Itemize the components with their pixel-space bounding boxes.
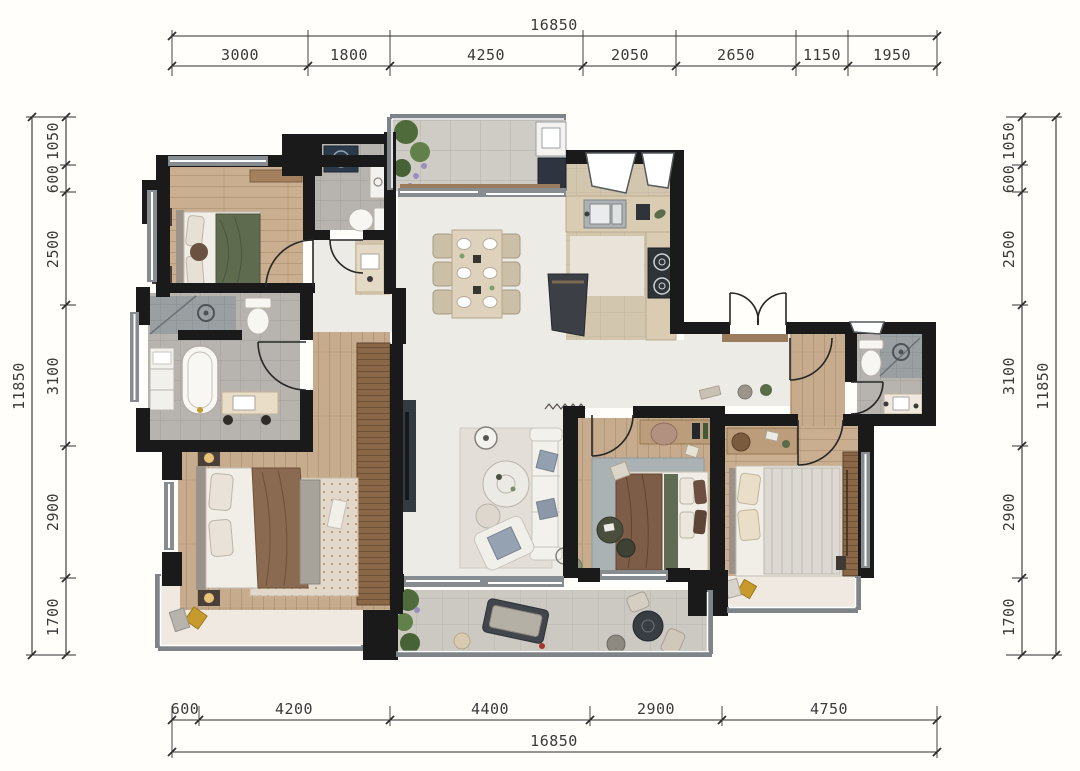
wall-bedroom1-bottom xyxy=(168,283,315,293)
dim-bottom-seg-0: 600 xyxy=(171,700,200,718)
wall-bath2-right-a xyxy=(300,293,313,340)
dim-left-seg-2: 2500 xyxy=(44,230,62,268)
wall-dining-corridor xyxy=(392,288,406,344)
sofa-pillow-1 xyxy=(536,450,558,472)
bath1-toilet-bowl xyxy=(349,209,373,231)
floor-plan-svg: 16850 3000 1800 4250 2050 2650 1150 1950… xyxy=(0,0,1080,771)
kitchen-sink-basin xyxy=(590,204,610,224)
dim-left-seg-5: 1700 xyxy=(44,598,62,636)
shower-head-dot xyxy=(204,311,209,316)
wall-bed2-bottom-pier-a xyxy=(578,568,600,582)
bedroom2-cushion-1 xyxy=(693,479,707,504)
dim-top-seg-5: 1150 xyxy=(803,46,841,64)
master-pillow-2 xyxy=(208,519,233,557)
lavender-4 xyxy=(414,607,420,613)
wall-chunk-laundry xyxy=(282,134,322,176)
dim-top-seg-1: 1800 xyxy=(330,46,368,64)
bath3-shower-dot xyxy=(899,350,904,355)
foyer-floor xyxy=(684,334,790,406)
window-bath3-flap xyxy=(850,322,884,334)
plate-6 xyxy=(483,297,497,308)
dining-greens-2 xyxy=(490,286,495,291)
wall-master-pier-bottom xyxy=(162,552,182,586)
dim-right-seg-2: 2500 xyxy=(1000,230,1018,268)
plant-bottom-3 xyxy=(400,633,420,653)
foyer-plant xyxy=(760,384,772,396)
wall-entry-a xyxy=(684,322,730,334)
plant-top-1 xyxy=(394,120,418,144)
kitchen-appliance xyxy=(636,204,650,220)
dim-right-seg-3: 3100 xyxy=(1000,357,1018,395)
dim-bottom-seg-1: 4200 xyxy=(275,700,313,718)
towels xyxy=(153,352,171,364)
bedroom2-pillow-2 xyxy=(680,512,694,538)
master-toilet-bowl xyxy=(247,308,269,334)
bath1-counter xyxy=(370,166,386,198)
dim-right-seg-0: 1050 xyxy=(1000,122,1018,160)
bedroom3-pillow-2 xyxy=(737,509,760,541)
dim-bottom-seg-2: 4400 xyxy=(471,700,509,718)
dim-left-seg-0: 1050 xyxy=(44,122,62,160)
bedroom1-headboard xyxy=(176,210,184,292)
wall-bedroom1-right xyxy=(303,155,315,240)
bedroom2-side-table-2 xyxy=(617,539,635,557)
dining-chair-4 xyxy=(500,234,520,258)
plate-1 xyxy=(457,239,471,250)
plate-2 xyxy=(483,239,497,250)
vanity-stool-2 xyxy=(261,415,271,425)
bedroom3-headboard xyxy=(729,468,736,574)
wall-nook-right xyxy=(384,242,396,294)
dim-right-seg-1: 600 xyxy=(1000,165,1018,194)
wall-bedroom3-top xyxy=(715,414,798,426)
pampas-plant xyxy=(454,633,470,649)
dim-right-seg-5: 1700 xyxy=(1000,598,1018,636)
wall-bed2-bottom-pier-b xyxy=(666,568,690,582)
plate-5 xyxy=(457,297,471,308)
door-entry-right xyxy=(758,293,786,325)
lavender-1 xyxy=(413,173,419,179)
dim-right-overall: 11850 xyxy=(1034,362,1052,410)
bedroom3-corner-item xyxy=(836,556,846,570)
dim-top-seg-0: 3000 xyxy=(221,46,259,64)
bathtub-faucet xyxy=(197,407,203,413)
balcony-table xyxy=(633,611,663,641)
bedroom3-basket xyxy=(732,433,750,451)
corridor-vanity xyxy=(356,244,384,292)
master-pillow-1 xyxy=(208,473,233,511)
plant-top-2 xyxy=(410,142,430,162)
foyer-stool xyxy=(738,385,752,399)
dining-chair-6 xyxy=(500,290,520,314)
bath1-toilet-tank xyxy=(374,208,385,232)
bath3-item-1 xyxy=(884,402,889,407)
dining-furniture xyxy=(433,230,520,318)
dim-left-overall: 11850 xyxy=(10,362,28,410)
bath3-toilet-tank xyxy=(859,340,883,349)
wall-master-living xyxy=(390,344,403,614)
wall-bath2-left-b xyxy=(136,408,150,452)
dim-bottom-overall: 16850 xyxy=(530,732,578,750)
dim-left-seg-4: 2900 xyxy=(44,493,62,531)
wall-bath3-right xyxy=(922,322,936,426)
wall-bed2-bed3 xyxy=(710,406,725,590)
wall-bath2-right-b xyxy=(300,390,313,448)
dining-chair-2 xyxy=(433,262,453,286)
bedroom1-pillow-1 xyxy=(185,215,204,247)
sofa-arm-top xyxy=(530,428,562,441)
vanity-stool-1 xyxy=(223,415,233,425)
bedroom3-pillow-1 xyxy=(737,473,761,505)
wall-bath1-bottom-b xyxy=(363,230,396,240)
wall-bath3-bottom xyxy=(845,414,936,426)
wall-bedroom1-left xyxy=(156,155,170,297)
master-shower-floor xyxy=(150,296,236,334)
master-headboard xyxy=(196,466,206,590)
vanity-item xyxy=(367,276,373,282)
bedroom2-pouf xyxy=(651,423,677,445)
dim-top-seg-3: 2050 xyxy=(611,46,649,64)
bedroom2-runner xyxy=(664,474,678,570)
bench-accent xyxy=(539,643,545,649)
entry-threshold xyxy=(722,334,788,342)
lavender-3 xyxy=(421,163,427,169)
master-vanity-mirror xyxy=(233,396,255,410)
master-runner-blanket xyxy=(300,480,320,584)
bath3-toilet-bowl xyxy=(861,350,881,376)
master-lamp-1 xyxy=(204,453,214,463)
kitchen-faucet xyxy=(585,212,590,217)
dim-bottom-seg-4: 4750 xyxy=(810,700,848,718)
coffee-table xyxy=(483,461,529,507)
bedroom2-books xyxy=(703,423,708,439)
table-item-1 xyxy=(496,474,502,480)
laundry-basin xyxy=(542,128,560,148)
table-item-2 xyxy=(511,487,516,492)
dim-bottom-seg-3: 2900 xyxy=(637,700,675,718)
bedroom3-desk-plant xyxy=(782,440,790,448)
master-toilet-tank xyxy=(245,298,271,308)
floor-plan-page: 16850 3000 1800 4250 2050 2650 1150 1950… xyxy=(0,0,1080,771)
kitchen-drainboard xyxy=(612,204,622,224)
vanity-basin xyxy=(361,254,379,269)
tv-console xyxy=(403,400,416,512)
dim-left-seg-3: 3100 xyxy=(44,357,62,395)
wall-bath1-bottom-a xyxy=(313,230,330,240)
dining-chair-1 xyxy=(433,234,453,258)
wall-living-bed2 xyxy=(563,406,578,578)
bedroom2-monitor xyxy=(692,423,700,439)
bath3-basin xyxy=(893,397,909,410)
dim-top-overall: 16850 xyxy=(530,16,578,34)
sofa-pillow-2 xyxy=(536,498,557,519)
dim-top-seg-4: 2650 xyxy=(717,46,755,64)
dining-centerpiece-2 xyxy=(473,286,481,294)
wall-bedroom2-top-b xyxy=(633,406,717,418)
master-wardrobe xyxy=(357,343,390,605)
dining-greens-1 xyxy=(460,254,465,259)
wall-bath3-left xyxy=(845,334,857,382)
wall-master-pier-top xyxy=(162,440,182,480)
plate-4 xyxy=(483,268,497,279)
door-entry-left xyxy=(730,293,758,325)
sofa-arm-bottom xyxy=(530,547,562,560)
floor-lamp-center xyxy=(483,435,489,441)
dim-top-seg-6: 1950 xyxy=(873,46,911,64)
plate-3 xyxy=(457,268,471,279)
wall-pier-balcony-left xyxy=(363,610,398,660)
wall-living-bottom-pier xyxy=(390,574,404,592)
bedroom2-pillow-1 xyxy=(680,478,694,504)
wall-bath2-partition xyxy=(178,330,242,340)
dining-chair-3 xyxy=(433,290,453,314)
wall-laundry-top xyxy=(322,134,386,144)
tv-screen xyxy=(405,412,409,500)
dining-chair-5 xyxy=(500,262,520,286)
dim-top-seg-2: 4250 xyxy=(467,46,505,64)
wall-kitchen-right xyxy=(670,150,684,334)
bedroom1-throw xyxy=(190,243,208,261)
dim-left-seg-1: 600 xyxy=(44,165,62,194)
master-lamp-2 xyxy=(204,593,214,603)
wall-bedroom3-top-stub xyxy=(843,414,853,426)
bath3-item-2 xyxy=(914,404,919,409)
balcony-pouf xyxy=(607,635,625,653)
dining-centerpiece-1 xyxy=(473,255,481,263)
dim-right-seg-4: 2900 xyxy=(1000,493,1018,531)
bedroom2-cushion-2 xyxy=(693,509,707,534)
